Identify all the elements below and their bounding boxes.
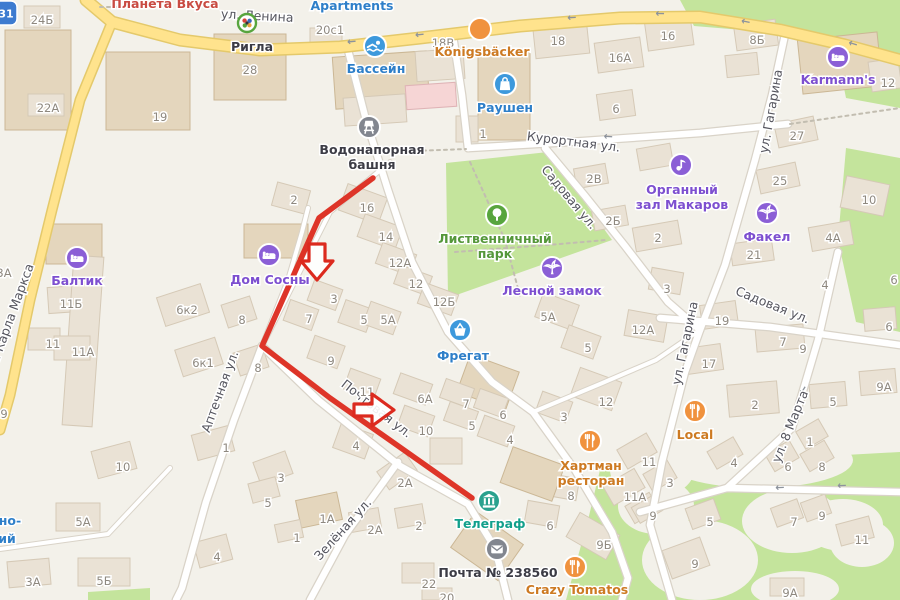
house-number: 6к1 <box>192 356 214 370</box>
house-number: 24Б <box>31 13 54 27</box>
house-number: 4 <box>730 456 737 470</box>
house-number: 4 <box>821 278 828 292</box>
house-number: 22 <box>422 577 437 591</box>
house-number: 2В <box>586 172 601 186</box>
house-number: 12А <box>632 323 655 337</box>
house-number: 8 <box>818 460 825 474</box>
house-number: 16 <box>661 29 676 43</box>
house-number: 7 <box>462 397 469 411</box>
bed-icon <box>66 247 88 269</box>
house-number: 11А <box>624 490 647 504</box>
croissant-icon <box>469 18 491 40</box>
house-number: 16А <box>609 51 632 65</box>
house-number: 9А <box>876 380 891 394</box>
house-number: 9Б <box>596 538 611 552</box>
poi-label: Дом Сосны <box>230 272 309 287</box>
transit-badge[interactable]: 31 <box>0 1 17 25</box>
house-number: 27 <box>790 129 805 143</box>
poi-label: Лесной замок <box>502 283 602 298</box>
transit-badge-label: 31 <box>0 8 14 21</box>
poi-label: Телеграф <box>455 516 526 531</box>
house-number: 2Б <box>605 214 620 228</box>
oneway-arrow-icon: ← <box>567 11 577 24</box>
house-number: 9 <box>799 342 806 356</box>
house-number: 20 <box>440 591 455 600</box>
house-number: 7 <box>790 515 797 529</box>
house-number: 1 <box>222 441 229 455</box>
poi-label: парк <box>478 246 513 261</box>
house-number: 9А <box>782 586 797 600</box>
house-number: 18 <box>551 34 566 48</box>
poi-label: Фрегат <box>437 348 490 363</box>
house-number: 6 <box>885 320 892 334</box>
poi-label: Факел <box>744 229 791 244</box>
poi-label: Karmann's <box>801 72 876 87</box>
house-number: 12А <box>389 256 412 270</box>
map-viewport[interactable]: ←←←←←←←←←←←ул. ЛенинаКурортная ул.Садова… <box>0 0 900 600</box>
house-number: 3 <box>330 292 337 306</box>
poi-label: Königsbäcker <box>434 44 530 59</box>
house-number: 2 <box>415 519 422 533</box>
poi-label-clipped-label-line1: но- <box>0 513 21 528</box>
house-number: 5 <box>706 515 713 529</box>
house-number: 11 <box>642 455 657 469</box>
house-number: 14 <box>379 230 394 244</box>
bed-icon <box>827 46 849 68</box>
building <box>106 52 190 130</box>
house-number: 5 <box>360 313 367 327</box>
house-number: 1 <box>806 435 813 449</box>
oneway-arrow-icon: ← <box>414 28 425 42</box>
house-number: 4 <box>352 439 359 453</box>
house-number: 1А <box>319 512 334 526</box>
house-number: 17 <box>702 357 717 371</box>
house-number: 28 <box>243 63 258 77</box>
house-number: 12Б <box>433 295 456 309</box>
house-number: 3 <box>666 476 673 490</box>
food-icon <box>564 556 586 578</box>
poi-label: Органный <box>646 182 718 197</box>
food-icon <box>684 400 706 422</box>
poi-label: башня <box>348 157 395 172</box>
house-number: 3 <box>663 282 670 296</box>
house-number: 5 <box>829 395 836 409</box>
house-number: 2 <box>654 231 661 245</box>
house-number: 5А <box>380 313 395 327</box>
house-number: 7 <box>779 335 786 349</box>
house-number: 3А <box>25 575 40 589</box>
poi-label-planeta-vkusa: Планета Вкуса <box>111 0 218 11</box>
house-number: 6 <box>546 519 553 533</box>
poi-label: Хартман <box>560 458 622 473</box>
house-number: 2А <box>367 523 382 537</box>
house-number: 10 <box>862 193 877 207</box>
poi-label: Local <box>677 427 714 442</box>
house-number: 8Б <box>749 33 764 47</box>
house-number: 2 <box>290 193 297 207</box>
house-number: 3 <box>277 471 284 485</box>
mail-icon-glyph <box>491 545 503 553</box>
house-number: 4 <box>506 433 513 447</box>
poi-label: Ригла <box>231 39 273 54</box>
house-number: 5 <box>468 419 475 433</box>
house-number: 3 <box>560 410 567 424</box>
poi-label: зал Макаров <box>636 197 729 212</box>
house-number: 5Б <box>96 574 111 588</box>
building <box>405 82 457 109</box>
house-number: 5 <box>264 496 271 510</box>
poi-label-apartments: Apartments <box>310 0 393 13</box>
house-number: 1 <box>479 127 486 141</box>
house-number: 8 <box>238 313 245 327</box>
house-number: 5А <box>540 310 555 324</box>
house-number: 2А <box>397 476 412 490</box>
house-number: 12 <box>599 395 614 409</box>
house-number: 21 <box>747 248 762 262</box>
poi-label: Раушен <box>477 100 533 115</box>
house-number: 1 <box>293 531 300 545</box>
house-number: 5А <box>75 515 90 529</box>
house-number: 11Б <box>60 297 83 311</box>
house-number: 10 <box>419 424 434 438</box>
house-number: 19 <box>153 110 168 124</box>
oneway-arrow-icon: ← <box>775 481 785 494</box>
house-number: 8 <box>567 489 574 503</box>
house-number: 20с1 <box>316 23 344 37</box>
oneway-arrow-icon: ← <box>346 35 357 49</box>
building <box>430 438 462 464</box>
house-number: 5 <box>584 341 591 355</box>
house-number: 6 <box>499 408 506 422</box>
house-number: 25 <box>773 174 788 188</box>
poi-label: Лиственничный <box>438 231 552 246</box>
poi-label: Почта № 238560 <box>438 565 558 580</box>
house-number: 6 <box>784 460 791 474</box>
house-number: 8 <box>254 361 261 375</box>
house-number: 22А <box>37 101 60 115</box>
building <box>725 52 759 77</box>
house-number: 11 <box>46 337 61 351</box>
food-icon <box>579 430 601 452</box>
house-number: 16 <box>360 201 375 215</box>
house-number: 9 <box>818 509 825 523</box>
map-canvas[interactable]: ←←←←←←←←←←←ул. ЛенинаКурортная ул.Садова… <box>0 0 900 600</box>
poi-label: ресторан <box>558 473 625 488</box>
house-number: 19 <box>715 314 730 328</box>
poi-label: Водонапорная <box>319 142 424 157</box>
house-number: 9 <box>691 557 698 571</box>
house-number: 9 <box>327 354 334 368</box>
house-number: 6А <box>417 392 432 406</box>
house-number: 9 <box>0 407 7 421</box>
building <box>809 381 847 408</box>
oneway-arrow-icon: ← <box>837 479 847 492</box>
poi-label-clipped-label-line2: ий <box>0 531 16 546</box>
house-number: 4А <box>825 231 840 245</box>
house-number: 6 <box>890 273 897 287</box>
house-number: 6к2 <box>176 303 198 317</box>
bed-icon <box>258 244 280 266</box>
house-number: 4 <box>213 550 220 564</box>
tower-icon <box>358 116 380 138</box>
house-number: 2 <box>751 398 758 412</box>
house-number: 10 <box>116 460 131 474</box>
house-number: 7 <box>305 312 312 326</box>
house-number: 6 <box>612 102 619 116</box>
rigla-icon-glyph <box>238 14 256 32</box>
poi-label: Бассейн <box>347 61 406 76</box>
house-number: 11А <box>72 345 95 359</box>
house-number: 12 <box>881 76 896 90</box>
house-number: 11 <box>855 533 870 547</box>
house-number: 9 <box>649 509 656 523</box>
house-number: 12 <box>409 277 424 291</box>
poi-label: Балтик <box>51 273 103 288</box>
poi-label: Crazy Tomatos <box>526 582 628 597</box>
house-number: 3А <box>0 266 12 280</box>
oneway-arrow-icon: ← <box>655 7 664 20</box>
